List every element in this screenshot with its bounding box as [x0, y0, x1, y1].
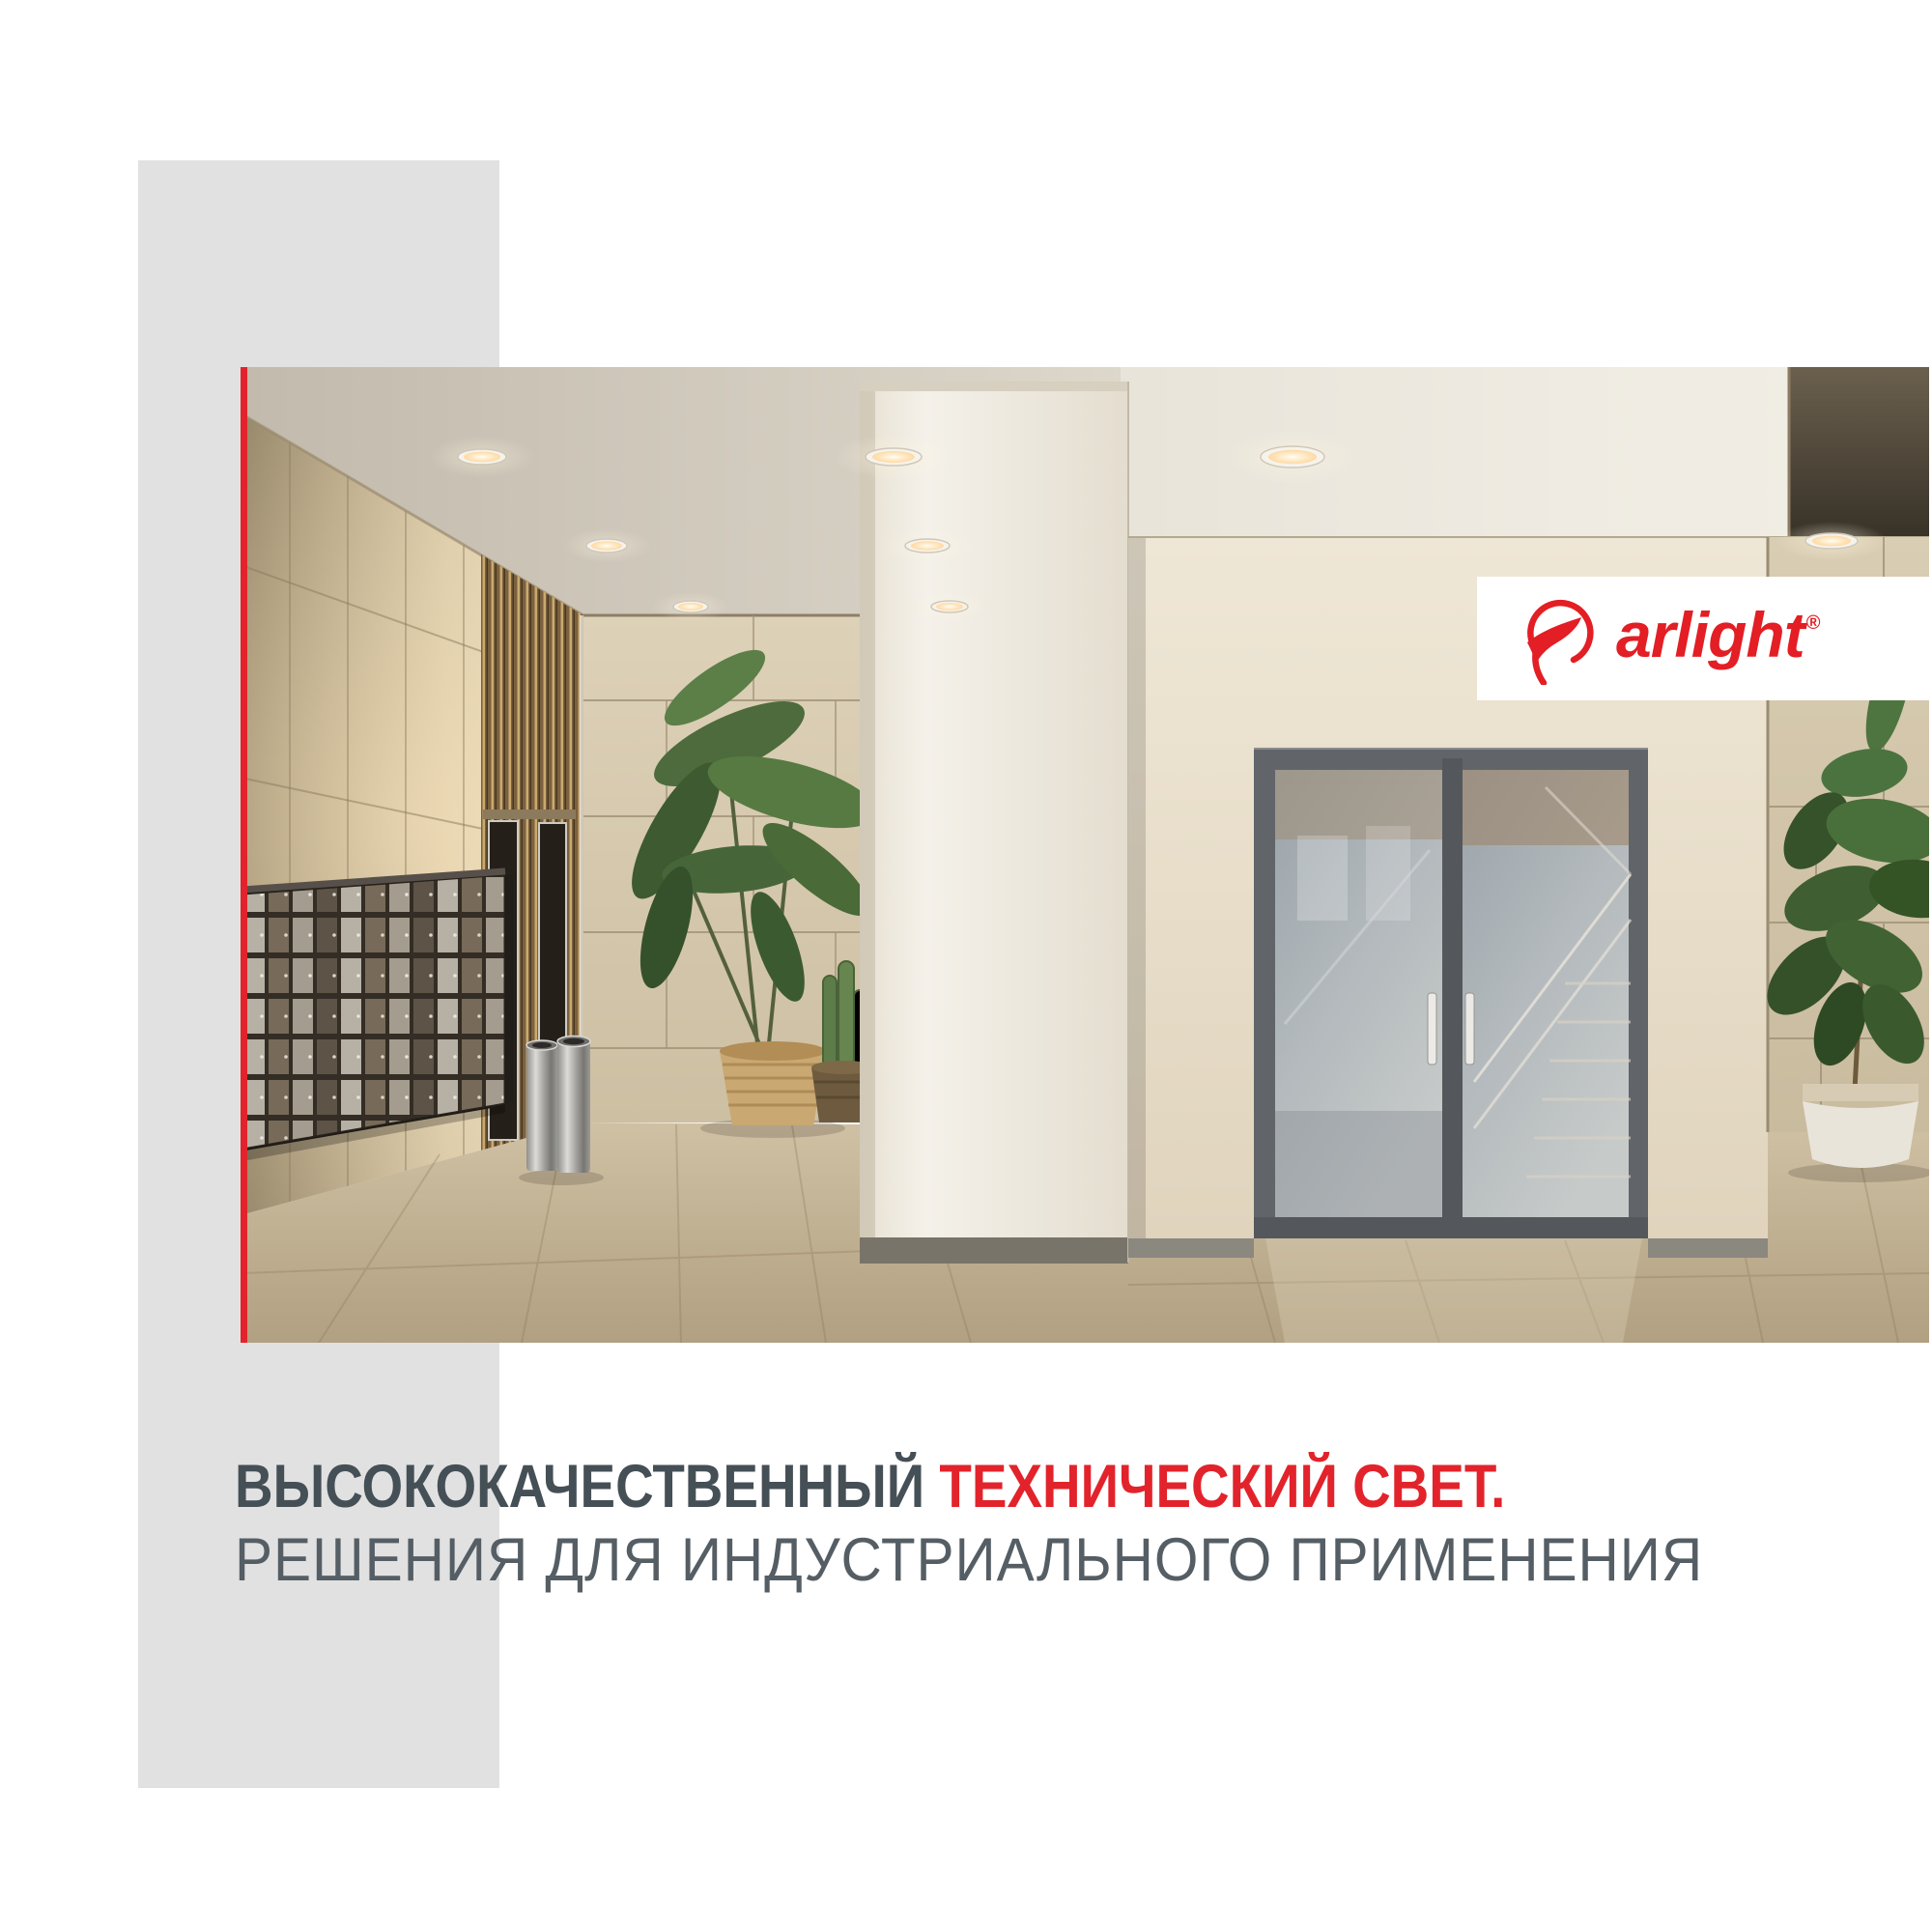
title-line2: РЕШЕНИЯ ДЛЯ ИНДУСТРИАЛЬНОГО ПРИМЕНЕНИЯ — [235, 1530, 1762, 1591]
lobby-illustration — [241, 367, 1929, 1343]
title-line1: ВЫСОКОКАЧЕСТВЕННЫЙ ТЕХНИЧЕСКИЙ СВЕТ. — [235, 1457, 1663, 1518]
white-pot — [1803, 1084, 1918, 1168]
lobby-photo — [241, 367, 1929, 1343]
brand-wordmark-text: arlight — [1616, 599, 1804, 670]
mailboxes — [242, 871, 513, 1161]
title-line1-dark: ВЫСОКОКАЧЕСТВЕННЫЙ — [235, 1453, 939, 1520]
glass-door — [1254, 749, 1648, 1238]
red-accent-line — [241, 367, 247, 1343]
title-line1-red: ТЕХНИЧЕСКИЙ СВЕТ. — [939, 1453, 1505, 1520]
brand-logo: arlight® — [1477, 577, 1932, 700]
granite-baseboard-left — [1128, 1238, 1254, 1258]
white-pillar — [860, 382, 1128, 1264]
brochure-cover-page: arlight® ВЫСОКОКАЧЕСТВЕННЫЙ ТЕХНИЧЕСКИЙ … — [0, 0, 1932, 1932]
arlight-logo-icon — [1518, 596, 1603, 685]
brand-wordmark: arlight® — [1616, 603, 1817, 667]
door-handle-right — [1465, 993, 1474, 1065]
door-handle-left — [1428, 993, 1436, 1065]
registered-mark: ® — [1806, 612, 1820, 634]
granite-baseboard-right — [1648, 1238, 1768, 1258]
woven-basket-pot — [720, 1041, 826, 1125]
cover-title: ВЫСОКОКАЧЕСТВЕННЫЙ ТЕХНИЧЕСКИЙ СВЕТ. РЕШ… — [235, 1457, 1877, 1591]
pillar-baseboard — [860, 1237, 1128, 1264]
